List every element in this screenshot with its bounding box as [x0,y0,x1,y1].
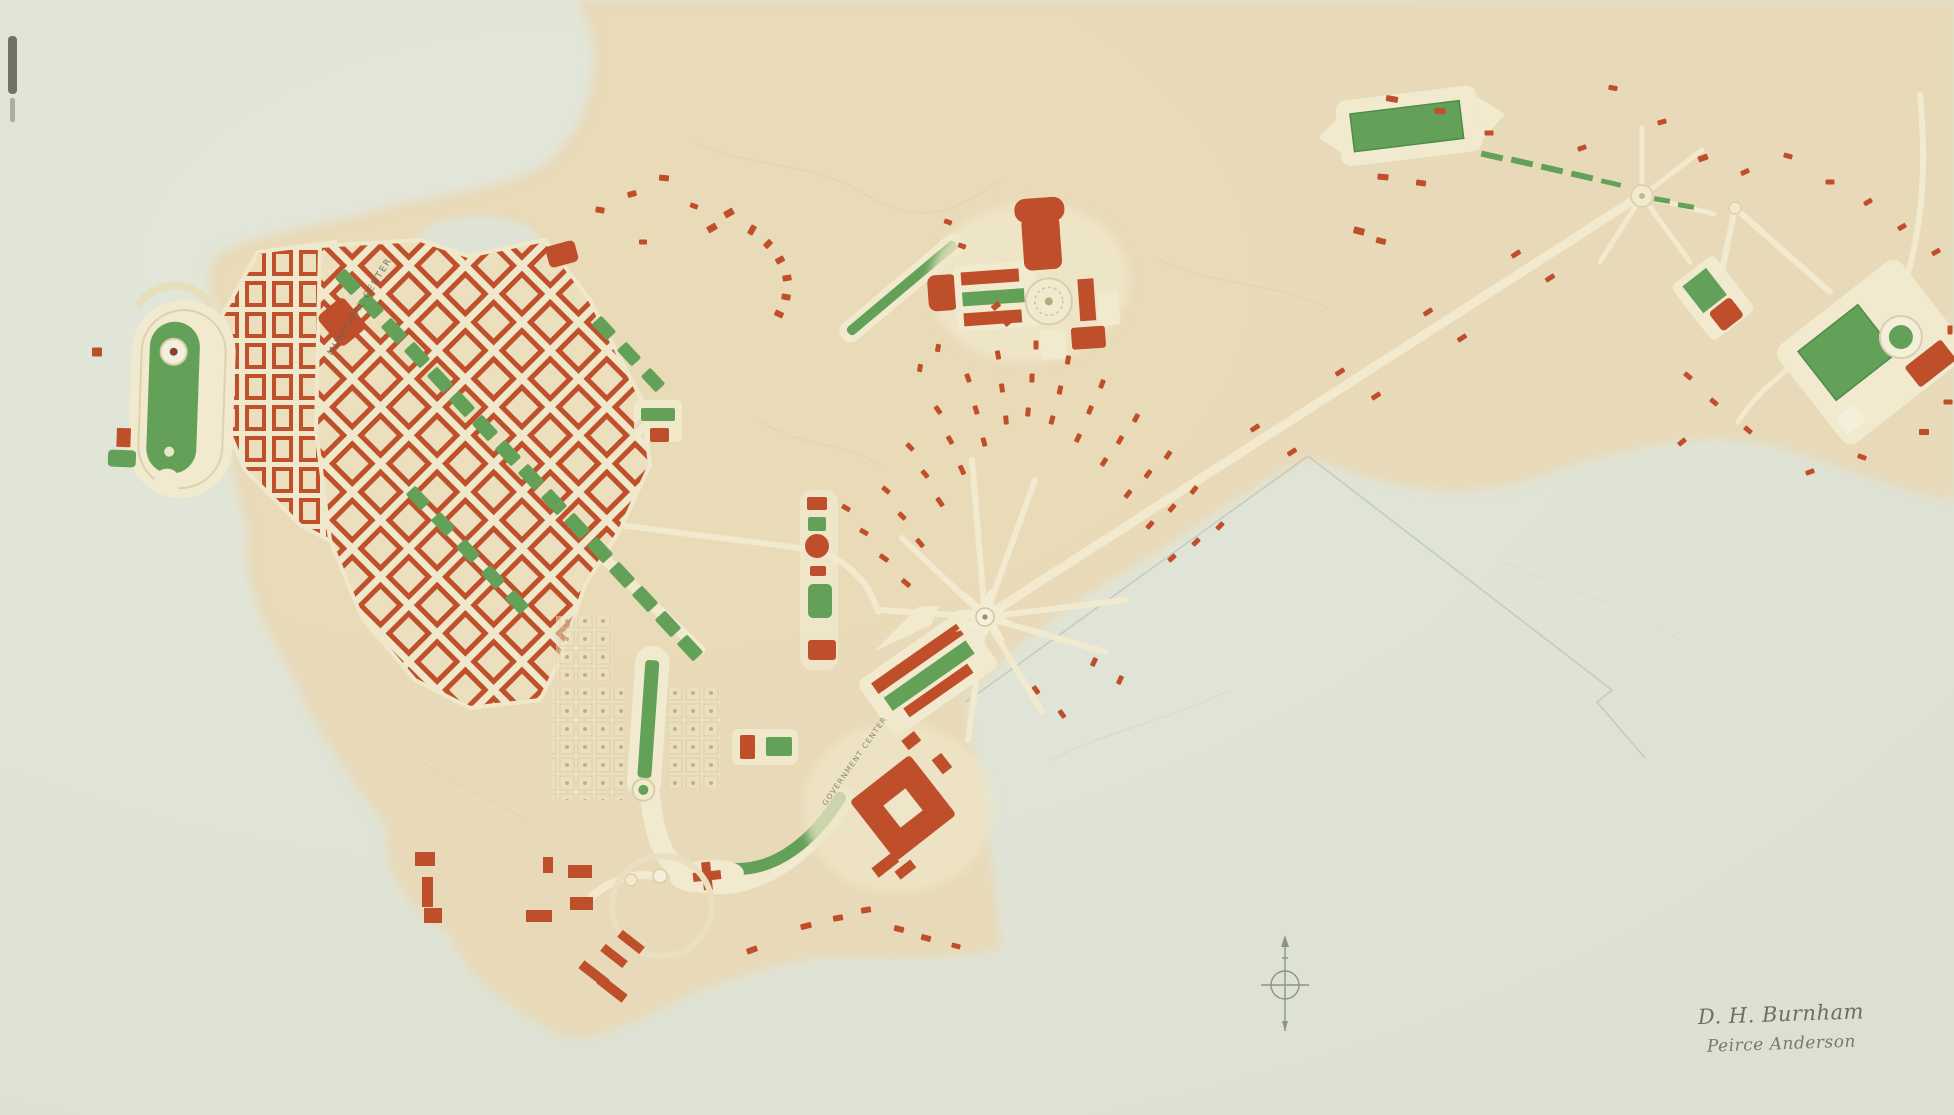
small-compound-west [634,400,682,442]
oval-west-building [116,428,131,447]
burnham-plan-map: MUNICIPAL CENTER GOVERNMENT CENTER D. H.… [0,0,1954,1115]
map-canvas: MUNICIPAL CENTER GOVERNMENT CENTER D. H.… [0,0,1954,1115]
secondary-hub [1729,202,1741,214]
civic-block-column [800,490,838,670]
oval-west-green [108,450,137,468]
government-quadrangle [803,723,993,893]
small-compound-south [732,729,798,765]
